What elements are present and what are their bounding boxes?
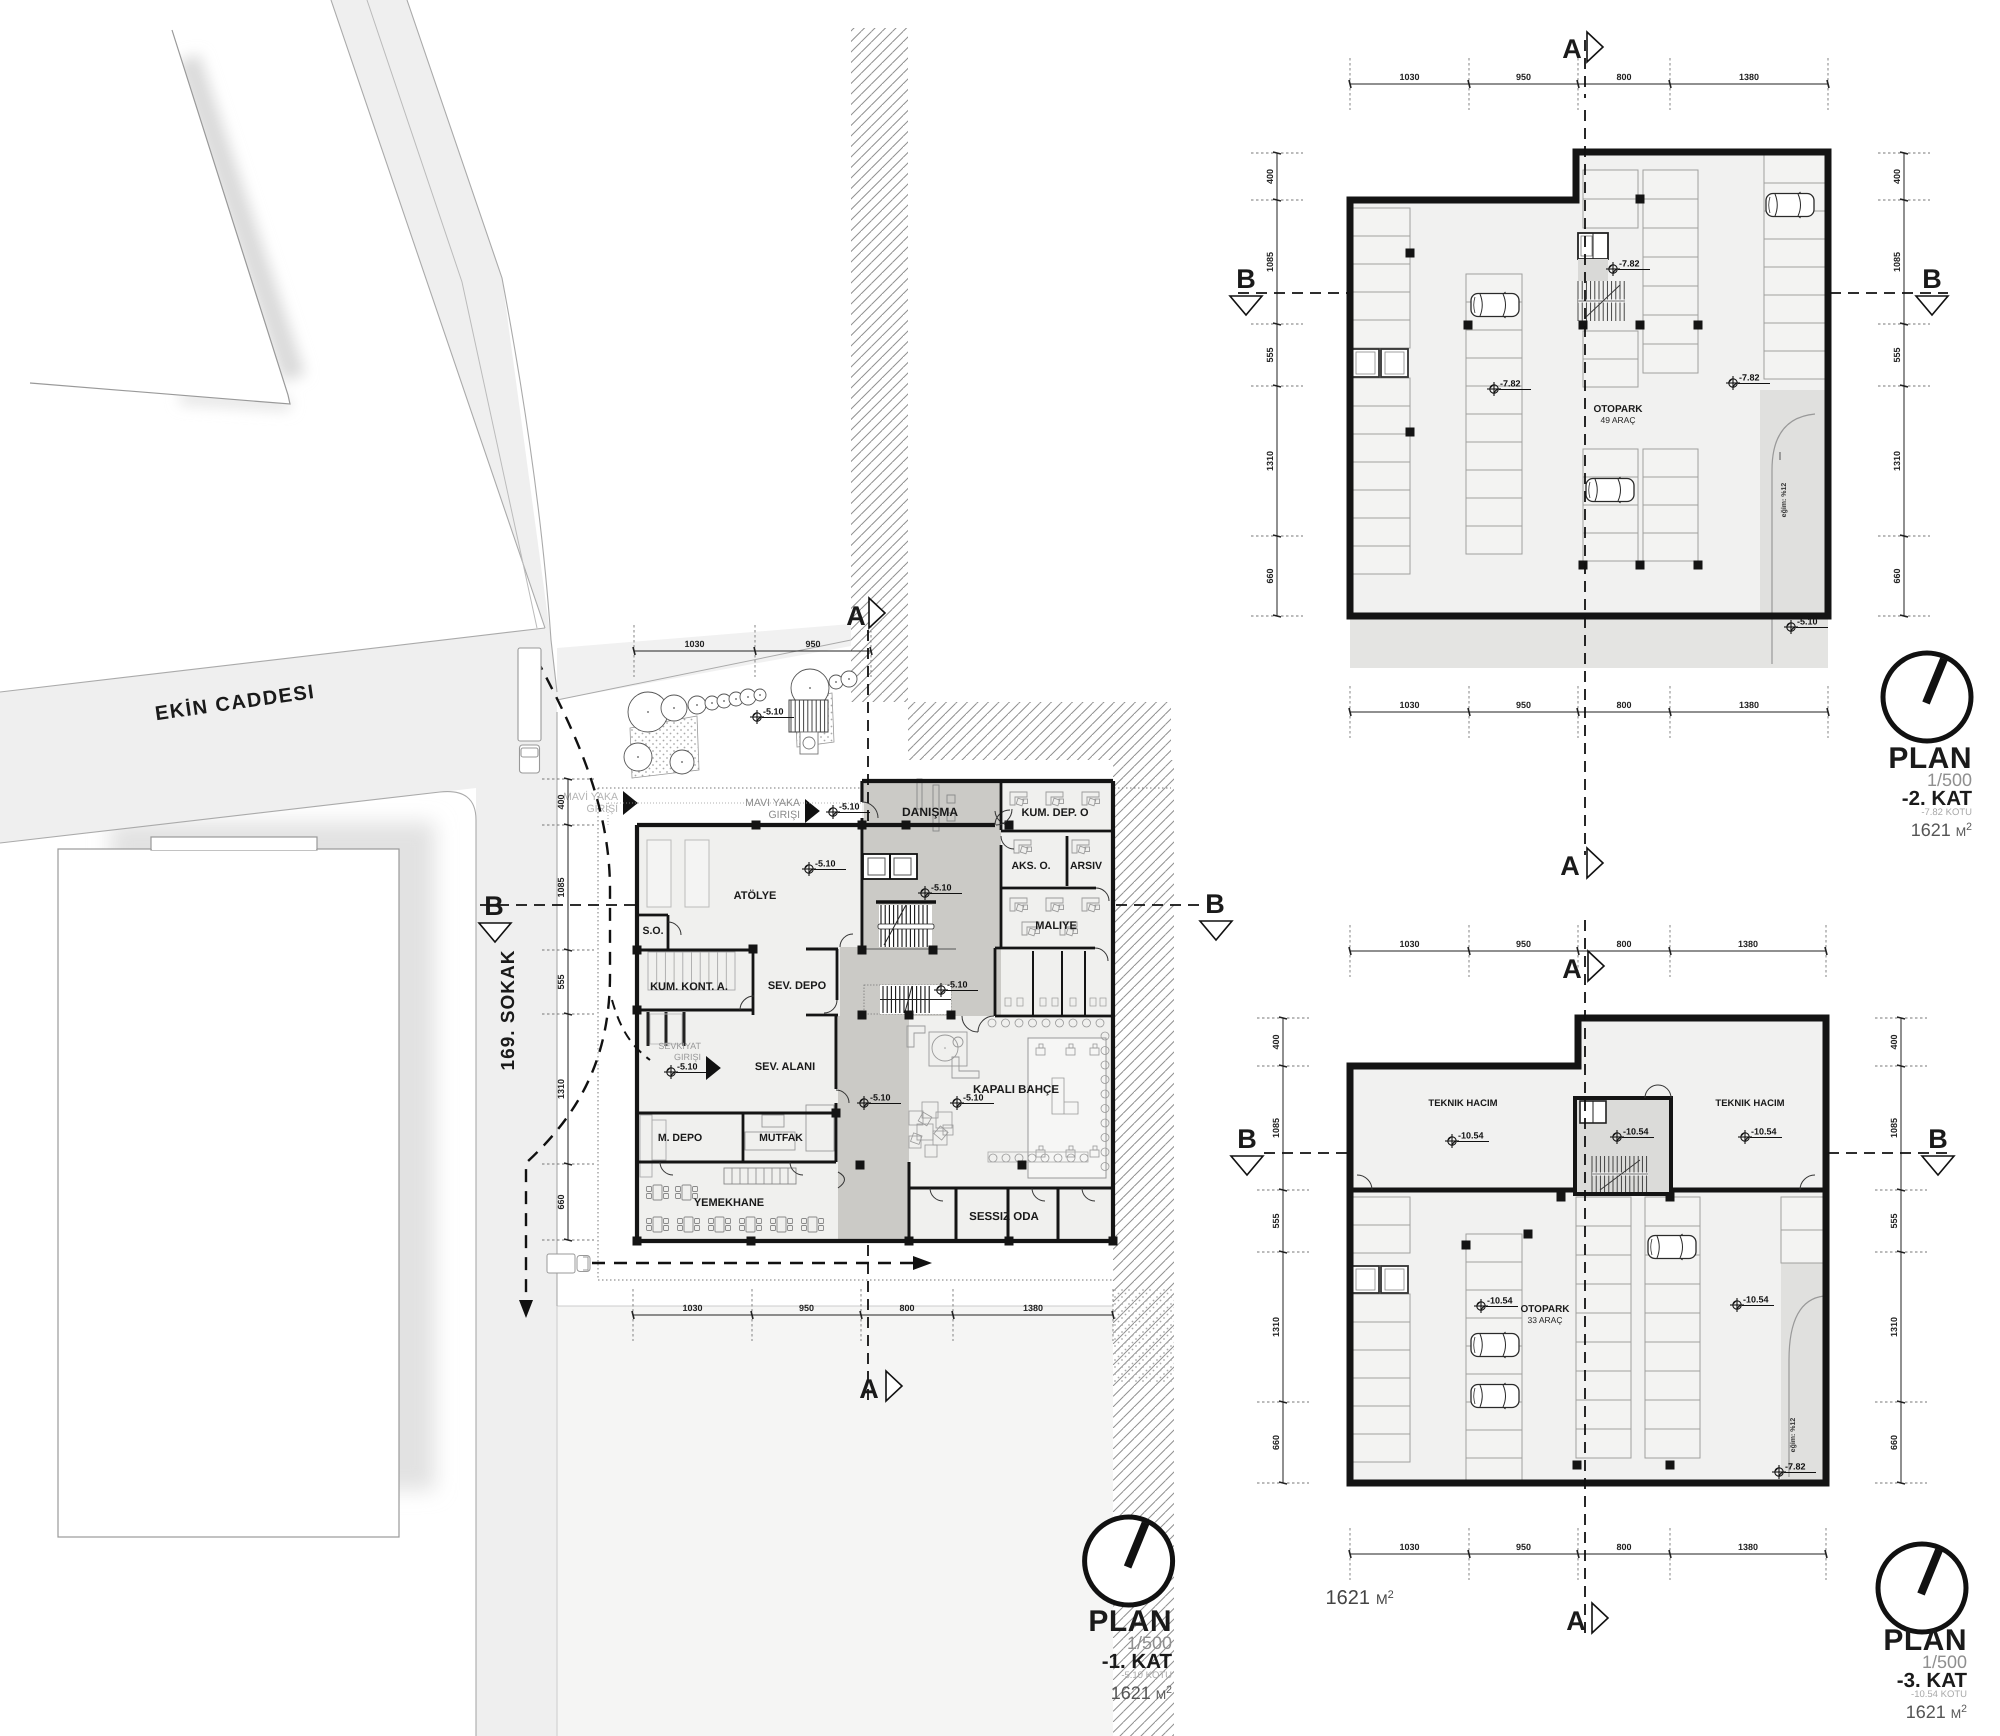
svg-text:800: 800 — [1616, 1542, 1631, 1552]
svg-text:1621: 1621 — [1326, 1587, 1371, 1609]
svg-text:1085: 1085 — [1265, 252, 1275, 272]
svg-text:1380: 1380 — [1738, 1542, 1758, 1552]
svg-text:SEV. DEPO: SEV. DEPO — [768, 980, 827, 992]
svg-text:SESSIZ ODA: SESSIZ ODA — [969, 1211, 1039, 1223]
svg-text:A: A — [846, 601, 866, 631]
svg-text:555: 555 — [556, 974, 566, 989]
svg-text:1310: 1310 — [1271, 1317, 1281, 1337]
svg-text:-5.10: -5.10 — [763, 707, 784, 717]
svg-text:A: A — [1562, 954, 1582, 984]
svg-text:660: 660 — [1271, 1435, 1281, 1450]
svg-text:-10.54: -10.54 — [1743, 1295, 1769, 1305]
svg-text:950: 950 — [799, 1303, 814, 1313]
svg-text:800: 800 — [1616, 72, 1631, 82]
svg-text:GİRİŞİ: GİRİŞİ — [586, 802, 618, 815]
svg-text:KUM. DEP. O: KUM. DEP. O — [1021, 807, 1088, 819]
svg-text:950: 950 — [1516, 1542, 1531, 1552]
svg-text:1085: 1085 — [1271, 1118, 1281, 1138]
svg-text:1085: 1085 — [556, 877, 566, 897]
svg-text:800: 800 — [899, 1303, 914, 1313]
svg-text:-10.54: -10.54 — [1751, 1127, 1777, 1137]
svg-text:B: B — [1922, 264, 1942, 294]
svg-text:1380: 1380 — [1023, 1303, 1043, 1313]
svg-text:eğim: %12: eğim: %12 — [1789, 1418, 1797, 1453]
svg-text:1380: 1380 — [1739, 700, 1759, 710]
svg-text:A: A — [859, 1374, 879, 1404]
svg-text:MUTFAK: MUTFAK — [759, 1132, 803, 1144]
svg-text:A: A — [1562, 34, 1582, 64]
svg-text:1030: 1030 — [1399, 72, 1419, 82]
svg-text:B: B — [1236, 264, 1256, 294]
svg-text:1310: 1310 — [1889, 1317, 1899, 1337]
svg-text:B: B — [484, 891, 504, 921]
svg-text:-5.10: -5.10 — [677, 1062, 698, 1072]
svg-text:1310: 1310 — [1265, 451, 1275, 471]
svg-text:-5.10: -5.10 — [870, 1093, 891, 1103]
svg-text:MAVİ YAKA: MAVİ YAKA — [563, 790, 618, 803]
svg-text:KAPALI BAHÇE: KAPALI BAHÇE — [973, 1084, 1059, 1096]
svg-text:660: 660 — [1892, 568, 1902, 583]
svg-text:-10.54 KOTU: -10.54 KOTU — [1911, 1689, 1967, 1700]
svg-text:555: 555 — [1892, 347, 1902, 362]
svg-text:B: B — [1928, 1124, 1948, 1154]
svg-text:SEVKIYAT: SEVKIYAT — [658, 1041, 701, 1051]
svg-text:800: 800 — [1616, 939, 1631, 949]
svg-text:660: 660 — [1265, 568, 1275, 583]
svg-text:-5.10: -5.10 — [947, 980, 968, 990]
svg-text:660: 660 — [556, 1194, 566, 1209]
svg-text:1030: 1030 — [684, 639, 704, 649]
svg-text:800: 800 — [1616, 700, 1631, 710]
svg-text:1380: 1380 — [1738, 939, 1758, 949]
svg-text:950: 950 — [1516, 939, 1531, 949]
svg-text:OTOPARK: OTOPARK — [1520, 1304, 1570, 1315]
svg-text:GIRIŞI: GIRIŞI — [674, 1052, 701, 1062]
svg-text:1310: 1310 — [1892, 451, 1902, 471]
svg-text:555: 555 — [1889, 1213, 1899, 1228]
svg-text:1030: 1030 — [1399, 1542, 1419, 1552]
svg-text:1310: 1310 — [556, 1079, 566, 1099]
svg-text:-7.82 KOTU: -7.82 KOTU — [1921, 807, 1972, 818]
svg-text:1030: 1030 — [1399, 700, 1419, 710]
svg-text:33 ARAÇ: 33 ARAÇ — [1528, 1315, 1563, 1325]
svg-text:TEKNIK HACIM: TEKNIK HACIM — [1428, 1098, 1497, 1109]
svg-text:1030: 1030 — [1399, 939, 1419, 949]
svg-text:400: 400 — [1892, 169, 1902, 184]
svg-text:DANIŞMA: DANIŞMA — [902, 805, 958, 819]
svg-text:1380: 1380 — [1739, 72, 1759, 82]
svg-text:ARSIV: ARSIV — [1070, 860, 1102, 872]
svg-text:-7.82: -7.82 — [1500, 379, 1521, 389]
svg-text:-5.10 KOTU: -5.10 KOTU — [1121, 1670, 1172, 1681]
svg-text:660: 660 — [1889, 1435, 1899, 1450]
svg-text:-7.82: -7.82 — [1785, 1462, 1806, 1472]
svg-text:A: A — [1560, 851, 1580, 881]
svg-text:555: 555 — [1271, 1213, 1281, 1228]
svg-text:1085: 1085 — [1889, 1118, 1899, 1138]
svg-text:-5.10: -5.10 — [963, 1093, 984, 1103]
svg-text:950: 950 — [1516, 72, 1531, 82]
svg-text:AKS. O.: AKS. O. — [1011, 860, 1050, 872]
svg-text:-10.54: -10.54 — [1623, 1127, 1649, 1137]
svg-text:-7.82: -7.82 — [1739, 373, 1760, 383]
svg-text:400: 400 — [556, 794, 566, 809]
svg-text:M. DEPO: M. DEPO — [658, 1132, 702, 1144]
svg-text:950: 950 — [1516, 700, 1531, 710]
svg-text:400: 400 — [1889, 1034, 1899, 1049]
svg-text:B: B — [1237, 1124, 1257, 1154]
svg-text:B: B — [1205, 889, 1225, 919]
svg-text:KUM. KONT. A.: KUM. KONT. A. — [650, 981, 728, 993]
svg-text:A: A — [1566, 1606, 1586, 1636]
svg-text:S.O.: S.O. — [642, 925, 663, 937]
svg-text:TEKNIK HACIM: TEKNIK HACIM — [1715, 1098, 1784, 1109]
svg-text:555: 555 — [1265, 347, 1275, 362]
svg-text:400: 400 — [1271, 1034, 1281, 1049]
svg-text:-10.54: -10.54 — [1487, 1296, 1513, 1306]
svg-text:ATÖLYE: ATÖLYE — [734, 889, 777, 902]
svg-text:YEMEKHANE: YEMEKHANE — [694, 1197, 764, 1209]
svg-text:MALIYE: MALIYE — [1035, 920, 1077, 932]
svg-text:SEV. ALANI: SEV. ALANI — [755, 1061, 815, 1073]
svg-text:1030: 1030 — [682, 1303, 702, 1313]
svg-text:1085: 1085 — [1892, 252, 1902, 272]
svg-text:950: 950 — [805, 639, 820, 649]
svg-text:-5.10: -5.10 — [931, 883, 952, 893]
svg-text:169. SOKAK: 169. SOKAK — [498, 950, 519, 1071]
svg-text:400: 400 — [1265, 169, 1275, 184]
svg-text:eğim: %12: eğim: %12 — [1780, 483, 1788, 518]
svg-text:OTOPARK: OTOPARK — [1593, 404, 1643, 415]
svg-text:-7.82: -7.82 — [1619, 259, 1640, 269]
svg-text:-5.10: -5.10 — [815, 859, 836, 869]
svg-text:-10.54: -10.54 — [1458, 1131, 1484, 1141]
svg-text:49 ARAÇ: 49 ARAÇ — [1601, 415, 1636, 425]
svg-text:GIRIŞI: GIRIŞI — [768, 809, 800, 821]
